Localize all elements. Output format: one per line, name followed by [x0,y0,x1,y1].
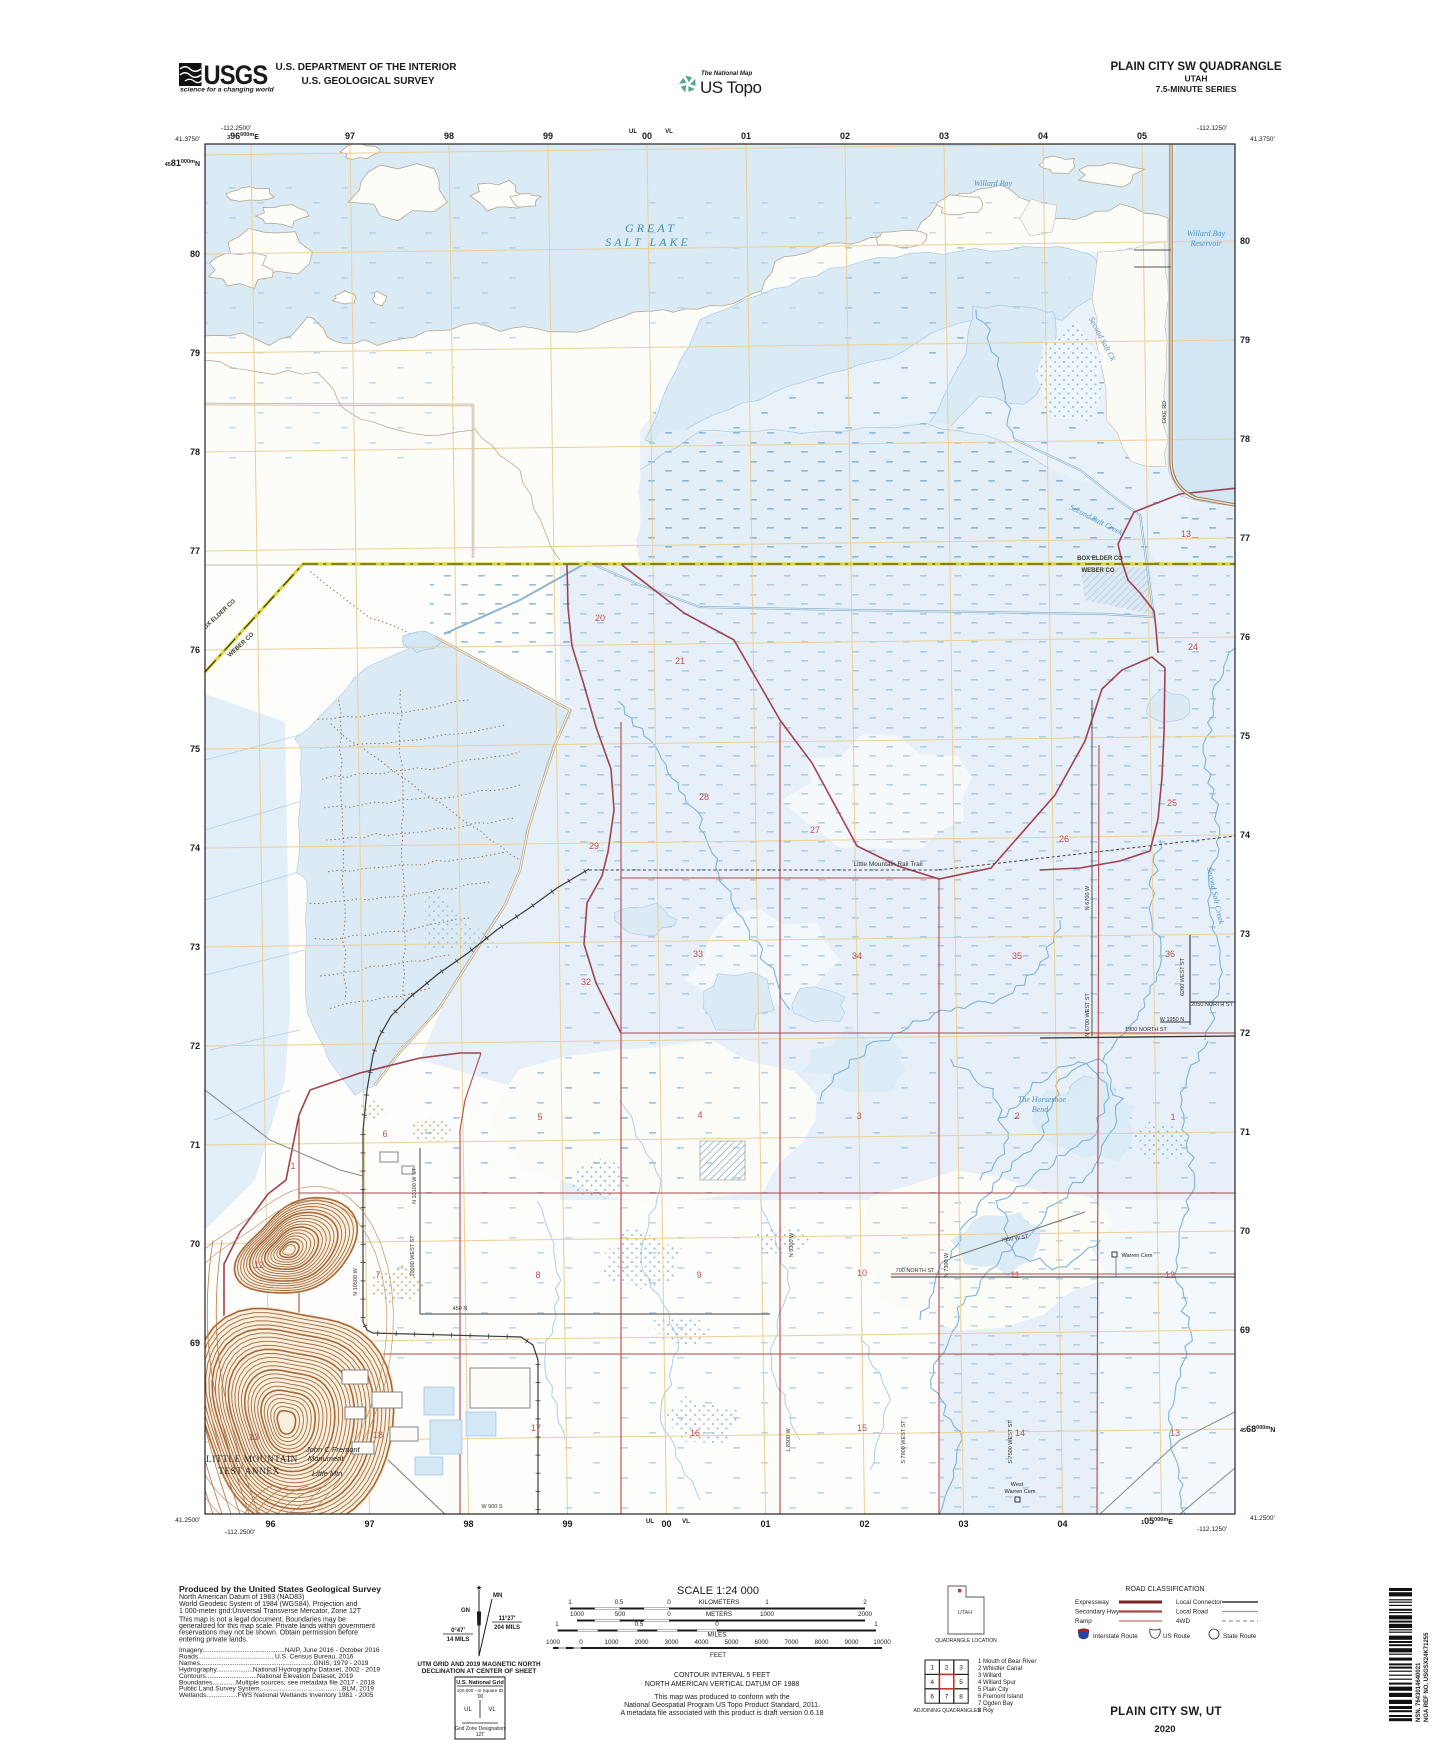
svg-text:′00: ′00 [477,1694,484,1700]
svg-text:14 MILS: 14 MILS [447,1637,470,1643]
svg-text:1: 1 [290,1161,295,1171]
svg-text:75: 75 [190,744,200,754]
svg-text:74: 74 [190,843,200,853]
svg-text:14: 14 [1015,1428,1025,1438]
svg-text:PLAIN CITY SW, UT: PLAIN CITY SW, UT [1110,1706,1222,1718]
svg-text:69: 69 [190,1338,200,1348]
svg-text:70: 70 [1240,1226,1250,1236]
svg-text:5 Plain City: 5 Plain City [978,1687,1008,1693]
svg-text:4: 4 [697,1110,702,1120]
svg-text:-112.2500′: -112.2500′ [221,125,252,132]
svg-text:29: 29 [589,841,599,851]
svg-text:UL: UL [646,1519,654,1525]
svg-text:MILES: MILES [708,1632,727,1639]
svg-text:WEBER CO: WEBER CO [1082,568,1115,574]
svg-text:DIKE RD: DIKE RD [1162,401,1168,423]
svg-text:ROAD CLASSIFICATION: ROAD CLASSIFICATION [1125,1586,1204,1593]
svg-text:98: 98 [444,131,454,141]
svg-text:1000: 1000 [604,1639,619,1646]
svg-text:VL: VL [682,1519,690,1525]
svg-text:20: 20 [595,613,605,623]
svg-text:Little Mountain Rail Trail: Little Mountain Rail Trail [853,861,923,868]
svg-text:41.3750′: 41.3750′ [175,136,200,143]
svg-text:11: 11 [1010,1270,1019,1280]
svg-text:1: 1 [930,1665,934,1672]
svg-text:Interstate Route: Interstate Route [1093,1633,1138,1640]
svg-text:7000: 7000 [784,1639,799,1646]
svg-text:FEET: FEET [710,1652,726,1659]
svg-text:GN: GN [461,1608,470,1614]
svg-text:0.5: 0.5 [615,1599,624,1606]
svg-text:9000: 9000 [844,1639,859,1646]
svg-text:01: 01 [760,1519,770,1529]
svg-text:Monument: Monument [308,1454,344,1463]
svg-text:World Geodetic System of 1984: World Geodetic System of 1984 (WGS84). P… [179,1601,358,1608]
svg-text:LITTLE MOUNTAIN: LITTLE MOUNTAIN [206,1454,298,1464]
svg-text:N 8300 W: N 8300 W [789,1232,795,1257]
svg-text:Willard Bay: Willard Bay [974,179,1013,188]
svg-text:35: 35 [1012,951,1022,961]
svg-text:03: 03 [939,131,949,141]
svg-text:BOX ELDER CO: BOX ELDER CO [1077,556,1123,562]
svg-text:18: 18 [373,1430,383,1440]
svg-text:97: 97 [345,131,355,141]
svg-text:DECLINATION AT CENTER OF SHEET: DECLINATION AT CENTER OF SHEET [422,1668,537,1675]
svg-text:The Horseshoe: The Horseshoe [1018,1095,1067,1104]
svg-text:96: 96 [265,1519,275,1529]
svg-text:NGA REF NO. USGSX24K71255: NGA REF NO. USGSX24K71255 [1424,1632,1430,1722]
svg-text:0: 0 [579,1639,583,1646]
svg-text:73: 73 [1240,929,1250,939]
svg-text:0: 0 [667,1611,671,1618]
svg-text:71: 71 [190,1140,200,1150]
svg-text:99: 99 [543,131,553,141]
svg-text:Local Road: Local Road [1176,1609,1208,1616]
svg-text:entering private lands.: entering private lands. [179,1636,248,1643]
svg-text:State Route: State Route [1223,1633,1257,1640]
svg-text:7 Ogden Bay: 7 Ogden Bay [978,1701,1013,1707]
svg-text:8: 8 [535,1270,540,1280]
svg-text:This map was produced to confo: This map was produced to conform with th… [654,1694,790,1701]
svg-text:69: 69 [1240,1325,1250,1335]
svg-text:UL: UL [464,1707,472,1713]
svg-text:VL: VL [665,129,673,135]
svg-text:70: 70 [190,1239,200,1249]
svg-text:Little Mtn: Little Mtn [312,1469,342,1478]
svg-text:NORTH AMERICAN VERTICAL DATUM: NORTH AMERICAN VERTICAL DATUM OF 1988 [645,1681,800,1688]
svg-text:12: 12 [1165,1270,1175,1280]
svg-text:METERS: METERS [706,1611,732,1618]
svg-text:QUADRANGLE LOCATION: QUADRANGLE LOCATION [935,1638,997,1644]
svg-text:17: 17 [531,1423,541,1433]
svg-text:3 Willard: 3 Willard [978,1673,1001,1679]
svg-text:1: 1 [765,1599,769,1606]
svg-text:John C Fremont: John C Fremont [305,1445,361,1454]
svg-text:0°47′: 0°47′ [451,1628,465,1634]
svg-text:77: 77 [1240,533,1250,543]
svg-text:8 Roy: 8 Roy [978,1708,994,1714]
svg-text:6: 6 [382,1129,387,1139]
svg-text:27: 27 [810,825,820,835]
svg-text:4 Willard Spur: 4 Willard Spur [978,1680,1016,1686]
svg-text:Secondary Hwy: Secondary Hwy [1075,1609,1120,1616]
svg-text:41.2500′: 41.2500′ [1250,1515,1275,1522]
svg-text:4000: 4000 [694,1639,709,1646]
svg-text:11°27′: 11°27′ [499,1616,516,1622]
svg-text:The National Map: The National Map [701,70,752,77]
svg-text:ADJOINING QUADRANGLES: ADJOINING QUADRANGLES [914,1708,982,1714]
svg-text:Local Connector: Local Connector [1176,1599,1222,1606]
svg-text:SALT LAKE: SALT LAKE [605,235,691,249]
svg-text:1 Mouth of Bear River: 1 Mouth of Bear River [978,1659,1036,1665]
svg-text:US Topo: US Topo [700,78,761,97]
svg-text:1000: 1000 [760,1611,775,1618]
svg-text:13: 13 [1170,1428,1180,1438]
svg-text:2: 2 [945,1665,949,1672]
svg-text:450 N: 450 N [453,1306,468,1312]
svg-text:2000: 2000 [634,1639,649,1646]
svg-text:12: 12 [254,1260,264,1270]
svg-text:N 6700 W: N 6700 W [1085,885,1091,910]
svg-text:Bend: Bend [1032,1105,1049,1114]
svg-text:1 000-meter grid:Universal Tra: 1 000-meter grid:Universal Transverse Me… [179,1608,362,1615]
svg-text:0: 0 [667,1599,671,1606]
svg-text:72: 72 [1240,1028,1250,1038]
svg-text:10000 WEST ST: 10000 WEST ST [410,1235,416,1277]
svg-text:Produced by the United States: Produced by the United States Geological… [179,1584,381,1594]
svg-text:0: 0 [715,1621,719,1628]
svg-text:36: 36 [1165,949,1175,959]
svg-text:500: 500 [615,1611,626,1618]
svg-text:77: 77 [190,546,200,556]
svg-text:25: 25 [1167,798,1177,808]
svg-text:-112.2500′: -112.2500′ [225,1529,256,1536]
svg-text:04: 04 [1038,131,1048,141]
svg-text:74: 74 [1240,830,1250,840]
svg-text:97: 97 [364,1519,374,1529]
svg-text:2 Whistler Canal: 2 Whistler Canal [978,1666,1022,1672]
svg-text:U.S. GEOLOGICAL SURVEY: U.S. GEOLOGICAL SURVEY [302,76,435,87]
svg-text:Warren Cem: Warren Cem [1005,1489,1036,1495]
svg-text:West: West [1011,1482,1024,1488]
svg-text:U.S. National Grid: U.S. National Grid [456,1680,504,1686]
svg-text:13: 13 [1181,529,1191,539]
svg-text:32: 32 [581,977,591,987]
svg-text:700 NORTH ST: 700 NORTH ST [896,1268,935,1274]
svg-text:7: 7 [945,1693,949,1700]
svg-text:12T: 12T [476,1732,485,1738]
svg-text:75: 75 [1240,731,1250,741]
svg-text:10000: 10000 [873,1639,891,1646]
svg-text:North American Datum of 1983 (: North American Datum of 1983 (NAD83) [179,1594,304,1601]
svg-text:N 10100 W ST: N 10100 W ST [412,1167,418,1204]
svg-text:3: 3 [959,1665,963,1672]
svg-text:00: 00 [661,1519,671,1529]
svg-text:L 8300 W: L 8300 W [786,1428,792,1452]
svg-text:5: 5 [537,1112,542,1122]
svg-text:99: 99 [562,1519,572,1529]
svg-text:W 1950 N: W 1950 N [1160,1017,1184,1023]
svg-text:79: 79 [1240,335,1250,345]
svg-text:S 7900 WEST ST: S 7900 WEST ST [901,1420,907,1464]
svg-text:4: 4 [930,1679,934,1686]
svg-text:1: 1 [555,1621,559,1628]
svg-text:80: 80 [190,249,200,259]
svg-text:41.3750′: 41.3750′ [1250,136,1275,143]
svg-text:00: 00 [642,131,652,141]
svg-text:6: 6 [930,1693,934,1700]
svg-text:78: 78 [1240,434,1250,444]
svg-text:1000: 1000 [546,1639,561,1646]
svg-text:41.2500′: 41.2500′ [175,1517,200,1524]
svg-text:9: 9 [696,1270,701,1280]
svg-text:3: 3 [856,1111,861,1121]
svg-text:Expressway: Expressway [1075,1599,1110,1606]
svg-text:PLAIN CITY SW QUADRANGLE: PLAIN CITY SW QUADRANGLE [1110,61,1281,73]
svg-text:76: 76 [190,645,200,655]
svg-text:2: 2 [863,1599,867,1606]
svg-text:02: 02 [859,1519,869,1529]
svg-text:UTM GRID AND 2019 MAGNETIC NOR: UTM GRID AND 2019 MAGNETIC NORTH [417,1661,541,1668]
svg-text:01: 01 [741,131,751,141]
svg-text:1000: 1000 [570,1611,585,1618]
svg-text:28: 28 [699,792,709,802]
svg-text:UL: UL [629,129,637,135]
svg-text:8: 8 [959,1693,963,1700]
svg-text:73: 73 [190,942,200,952]
svg-text:5000: 5000 [724,1639,739,1646]
svg-text:National Geospatial Program US: National Geospatial Program US Topo Prod… [624,1702,820,1709]
svg-text:76: 76 [1240,632,1250,642]
svg-text:33: 33 [693,949,703,959]
svg-text:2020: 2020 [1154,1724,1175,1735]
svg-text:N 7300 W: N 7300 W [944,1252,950,1277]
svg-text:Wetlands.................FWS: Wetlands.................FWS National We… [179,1692,374,1699]
svg-text:1900 NORTH ST: 1900 NORTH ST [1125,1027,1167,1033]
svg-text:UTAH: UTAH [1185,74,1208,84]
svg-text:71: 71 [1240,1127,1250,1137]
svg-text:KILOMETERS: KILOMETERS [699,1599,740,1606]
svg-text:10: 10 [857,1268,867,1278]
svg-text:79: 79 [190,348,200,358]
svg-text:98: 98 [463,1519,473,1529]
svg-text:1: 1 [1170,1112,1175,1122]
svg-text:-112.1250′: -112.1250′ [1197,1526,1228,1533]
svg-text:78: 78 [190,447,200,457]
svg-text:100,000 - m Square ID: 100,000 - m Square ID [457,1688,504,1693]
svg-text:34: 34 [852,951,862,961]
svg-text:1: 1 [568,1599,572,1606]
svg-text:MN: MN [493,1593,502,1599]
svg-text:N 6700 WEST ST: N 6700 WEST ST [1085,993,1091,1037]
svg-text:6000: 6000 [754,1639,769,1646]
svg-text:6 Fremont Island: 6 Fremont Island [978,1694,1023,1700]
svg-text:03: 03 [958,1519,968,1529]
svg-text:2050 NORTH ST: 2050 NORTH ST [1191,1002,1233,1008]
svg-text:NSN. 7643014640021: NSN. 7643014640021 [1416,1662,1422,1722]
svg-text:8000: 8000 [814,1639,829,1646]
svg-text:A metadata file associated wit: A metadata file associated with this pro… [620,1710,823,1717]
svg-text:N 10500 W: N 10500 W [353,1267,359,1295]
svg-text:★: ★ [476,1584,482,1592]
svg-text:Reservoir: Reservoir [1189,239,1222,248]
svg-text:SCALE 1:24 000: SCALE 1:24 000 [677,1585,759,1597]
svg-text:TEST ANNEX: TEST ANNEX [218,1466,280,1476]
svg-text:Warren Cem: Warren Cem [1122,1253,1153,1259]
svg-text:24: 24 [1188,642,1198,652]
svg-text:U.S. DEPARTMENT OF THE INTERIO: U.S. DEPARTMENT OF THE INTERIOR [276,62,458,73]
svg-text:US Route: US Route [1163,1633,1191,1640]
svg-text:13: 13 [249,1432,259,1442]
svg-text:CONTOUR INTERVAL 5 FEET: CONTOUR INTERVAL 5 FEET [674,1672,771,1679]
svg-text:S 7500 WEST ST: S 7500 WEST ST [1008,1420,1014,1464]
svg-text:15: 15 [857,1423,867,1433]
svg-text:04: 04 [1057,1519,1067,1529]
svg-text:2000: 2000 [858,1611,873,1618]
svg-text:02: 02 [840,131,850,141]
svg-text:Ramp: Ramp [1075,1618,1092,1625]
svg-text:1: 1 [874,1621,878,1628]
svg-text:4WD: 4WD [1176,1618,1190,1625]
svg-text:16: 16 [690,1428,700,1438]
svg-text:3000: 3000 [664,1639,679,1646]
svg-text:VL: VL [488,1707,496,1713]
svg-text:5: 5 [959,1679,963,1686]
svg-text:204 MILS: 204 MILS [494,1625,520,1631]
svg-text:21: 21 [675,656,685,666]
svg-text:-112.1250′: -112.1250′ [1197,125,1228,132]
svg-text:GREAT: GREAT [625,221,677,235]
svg-text:6200 WEST ST: 6200 WEST ST [1180,957,1186,996]
svg-text:72: 72 [190,1041,200,1051]
svg-text:2: 2 [1014,1111,1019,1121]
svg-text:W 900 S: W 900 S [481,1504,502,1510]
svg-text:05: 05 [1137,131,1147,141]
svg-text:80: 80 [1240,236,1250,246]
svg-text:Willard Bay: Willard Bay [1187,229,1226,238]
svg-text:0.5: 0.5 [635,1621,644,1628]
svg-text:science for a changing world: science for a changing world [180,87,275,94]
svg-text:7: 7 [375,1270,380,1280]
svg-text:26: 26 [1059,834,1069,844]
svg-text:7.5-MINUTE SERIES: 7.5-MINUTE SERIES [1156,84,1237,94]
svg-text:UTAH: UTAH [958,1610,972,1616]
